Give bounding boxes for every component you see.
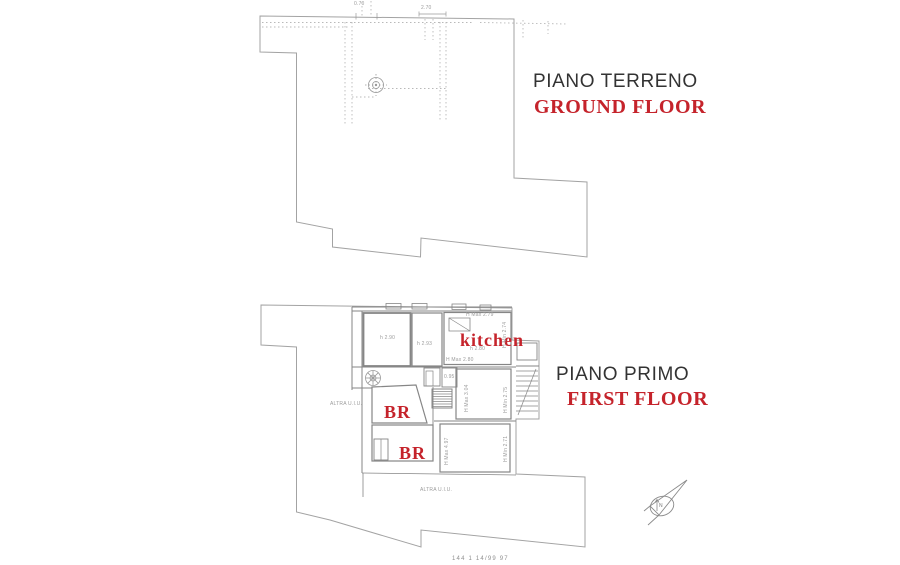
internal-stair (432, 389, 452, 408)
room2-height-note: h 2.93 (417, 342, 432, 347)
survey-target-icon-2 (366, 371, 381, 386)
compass-north-letter: N (659, 504, 663, 509)
room1-height-note: h 2.90 (380, 336, 395, 341)
plan-drawing-canvas (0, 0, 900, 565)
other-unit-note-bottom: ALTRA U.I.U. (420, 488, 452, 493)
survey-target-icon (365, 74, 387, 96)
roomD-hmax-note: H Max 4.97 (445, 437, 450, 465)
kitchen-hmin-note: H Min 2.74 (503, 322, 508, 348)
other-unit-note-left: ALTRA U.I.U. (330, 402, 362, 407)
hall-width-note: 0.95 (444, 375, 455, 380)
ground-floor-dimension-small: 0.70 (354, 2, 365, 7)
roomD-hmin-note: H Min 2.71 (504, 436, 509, 462)
first-floor-title-italian: PIANO PRIMO (556, 364, 689, 386)
roomC-hmax-note: H Max 3.04 (465, 384, 470, 412)
external-stair (516, 343, 539, 415)
bedroom2-label: BR (399, 443, 426, 464)
ground-floor-dotted-walls (262, 1, 568, 126)
ground-floor-title-italian: PIANO TERRENO (533, 71, 698, 93)
floor-plan-document: PIANO TERRENO GROUND FLOOR 2.70 0.70 PIA… (0, 0, 900, 565)
compass-north-icon (644, 480, 687, 525)
bedroom1-label: BR (384, 402, 411, 423)
roomC-hmin-note: H Min 2.75 (504, 387, 509, 413)
ground-floor-dimension: 2.70 (421, 6, 432, 11)
ground-floor-outline (260, 16, 587, 257)
first-floor-title-english: FIRST FLOOR (567, 388, 708, 411)
kitchen-hmax-note: H Max 2.79 (466, 313, 494, 318)
ground-floor-title-english: GROUND FLOOR (534, 96, 706, 119)
kitchen-height-note: h 2.80 (470, 347, 485, 352)
kitchen-hmax2-note: H Max 2.80 (446, 358, 474, 363)
footer-note: 144 1 14/99 97 (452, 556, 509, 562)
ground-floor-plan (260, 1, 587, 257)
